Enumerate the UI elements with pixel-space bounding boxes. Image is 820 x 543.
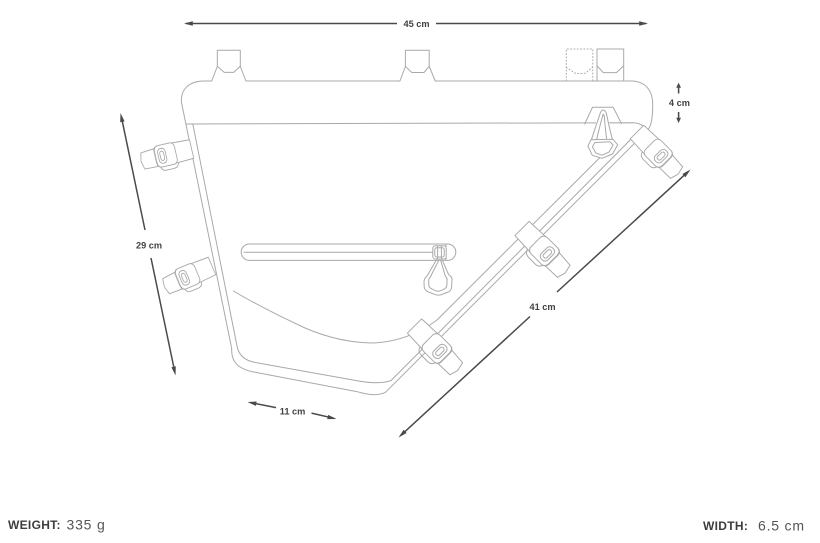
svg-text:335 g: 335 g (67, 517, 106, 533)
svg-text:WIDTH:: WIDTH: (703, 519, 748, 533)
svg-text:29 cm: 29 cm (136, 241, 162, 251)
svg-text:WEIGHT:: WEIGHT: (8, 518, 61, 532)
svg-text:11 cm: 11 cm (280, 407, 306, 417)
svg-text:6.5 cm: 6.5 cm (758, 518, 805, 534)
svg-text:4 cm: 4 cm (669, 98, 690, 108)
svg-text:45 cm: 45 cm (403, 19, 429, 29)
svg-text:41 cm: 41 cm (529, 302, 555, 312)
